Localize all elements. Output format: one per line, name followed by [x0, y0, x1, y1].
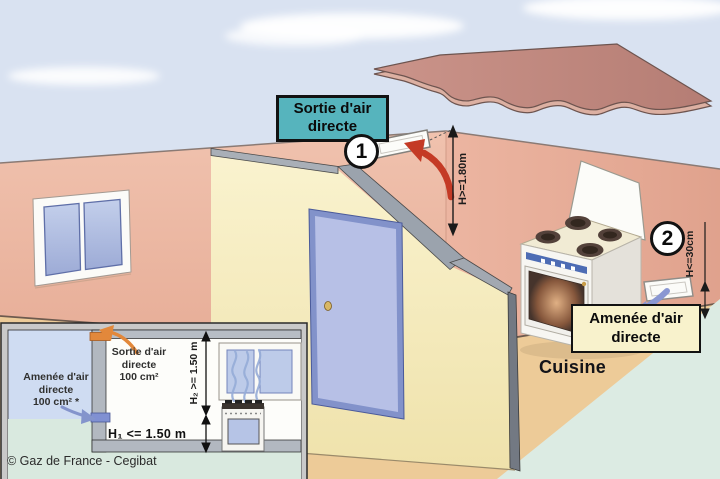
inset-stove — [222, 400, 264, 451]
cloud — [225, 26, 365, 46]
inset-outlet-line3: 100 cm² — [103, 371, 175, 384]
inset-inlet-line1: Amenée d'air — [8, 371, 104, 384]
cloud — [8, 67, 160, 85]
copyright-credit: © Gaz de France - Cegibat — [7, 454, 157, 468]
inset-outlet-line2: directe — [103, 359, 175, 372]
inlet-label-box: Amenée d'air directe — [571, 304, 701, 353]
inset-oven-window — [228, 419, 259, 444]
inset-h1-dimension-label: H₁ <= 1.50 m — [108, 427, 186, 441]
hc-dimension-label: H<=30cm — [684, 218, 696, 290]
inlet-label-line1: Amenée d'air — [573, 309, 699, 328]
inset-h2-dimension-label: H₂ >= 1.50 m — [188, 335, 200, 411]
window — [33, 190, 131, 288]
outlet-label-line2: directe — [279, 118, 386, 136]
room-label: Cuisine — [539, 357, 606, 378]
ventilation-diagram: Sortie d'air directe 1 2 H>=1.80m H<=30c… — [0, 0, 720, 479]
step-badge-2: 2 — [650, 221, 685, 256]
inlet-label-line2: directe — [573, 328, 699, 347]
inset-outlet-line1: Sortie d'air — [103, 346, 175, 359]
step-badge-1: 1 — [344, 134, 379, 169]
door-knob — [325, 302, 332, 311]
inset-inlet-label: Amenée d'air directe 100 cm² * — [8, 371, 104, 409]
door — [309, 209, 404, 419]
h2-dimension-label: H>=1.80m — [457, 130, 469, 228]
outlet-label-line1: Sortie d'air — [279, 100, 386, 118]
inset-outlet-label: Sortie d'air directe 100 cm² — [103, 346, 175, 384]
outlet-label-box: Sortie d'air directe — [276, 95, 389, 142]
scene-art — [0, 0, 720, 479]
inset-inlet-line2: directe — [8, 384, 104, 397]
inset-inlet-line3: 100 cm² * — [8, 396, 104, 409]
